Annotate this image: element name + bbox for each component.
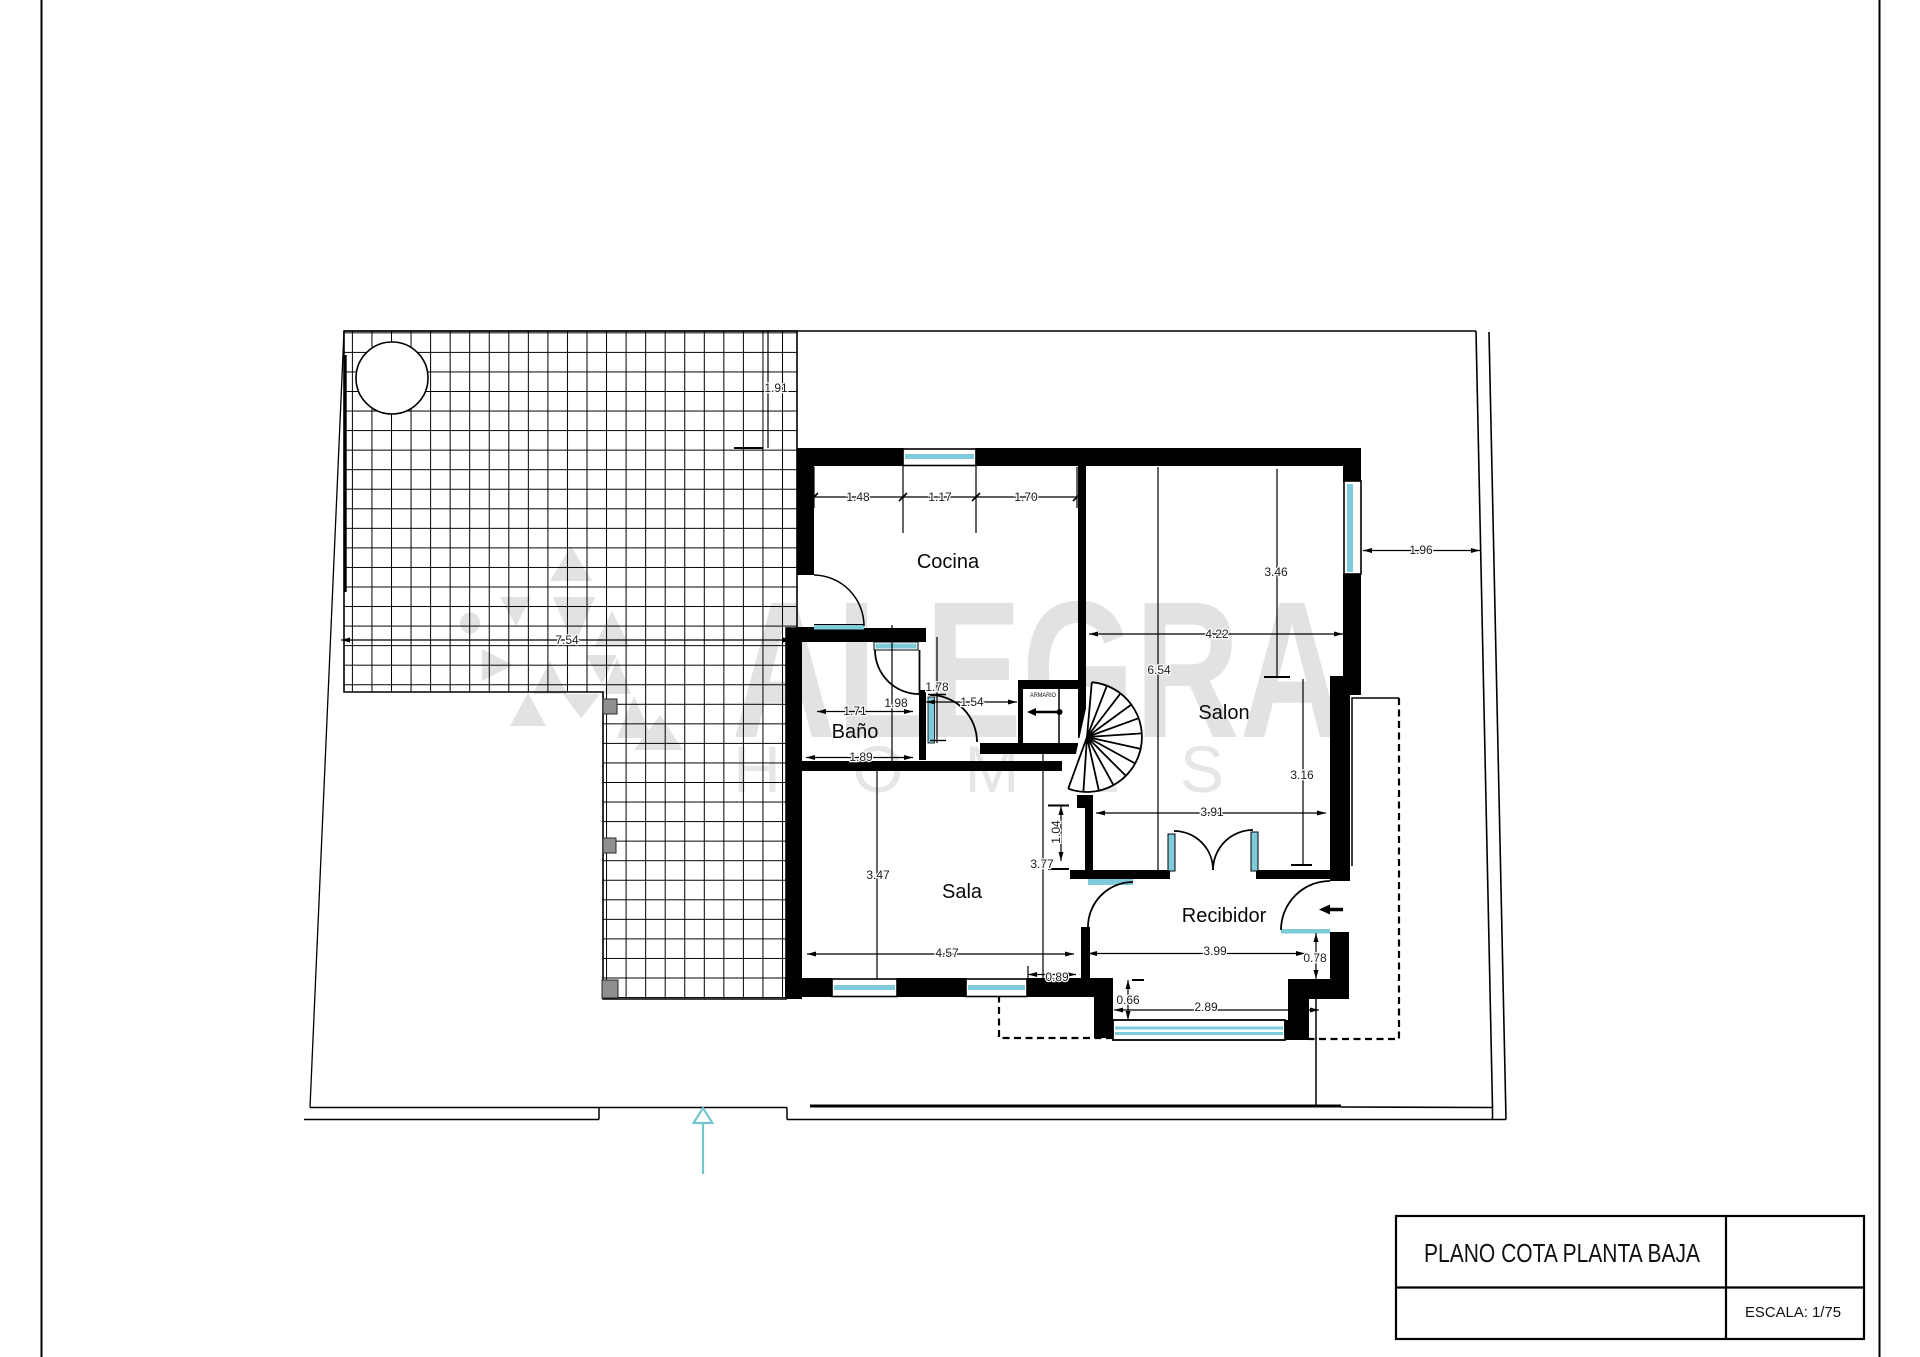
svg-text:6.54: 6.54 <box>1147 663 1171 677</box>
svg-text:ARMARIO: ARMARIO <box>1030 692 1056 699</box>
svg-text:3.46: 3.46 <box>1264 565 1288 579</box>
svg-text:4.57: 4.57 <box>935 946 959 960</box>
svg-text:1.96: 1.96 <box>1409 543 1433 557</box>
svg-text:1.17: 1.17 <box>928 490 952 504</box>
svg-text:1.98: 1.98 <box>884 696 908 710</box>
svg-text:1.04: 1.04 <box>1049 820 1063 844</box>
svg-text:Baño: Baño <box>832 721 879 743</box>
svg-text:4.22: 4.22 <box>1205 627 1229 641</box>
svg-text:Cocina: Cocina <box>917 551 980 573</box>
svg-text:PLANO COTA PLANTA BAJA: PLANO COTA PLANTA BAJA <box>1424 1238 1701 1268</box>
svg-text:1.54: 1.54 <box>960 695 984 709</box>
svg-text:0.89: 0.89 <box>1045 970 1069 984</box>
svg-text:Recibidor: Recibidor <box>1182 905 1267 927</box>
svg-text:1.89: 1.89 <box>849 750 873 764</box>
svg-text:0.66: 0.66 <box>1116 993 1140 1007</box>
svg-text:ESCALA: 1/75: ESCALA: 1/75 <box>1745 1304 1841 1321</box>
svg-text:Sala: Sala <box>942 881 983 903</box>
svg-text:1.91: 1.91 <box>764 381 788 395</box>
svg-text:7.54: 7.54 <box>555 633 579 647</box>
svg-text:1.78: 1.78 <box>925 680 949 694</box>
svg-text:1.71: 1.71 <box>843 704 867 718</box>
svg-text:0.78: 0.78 <box>1303 951 1327 965</box>
svg-text:2.89: 2.89 <box>1194 1000 1218 1014</box>
svg-text:3.99: 3.99 <box>1203 944 1227 958</box>
svg-text:1.70: 1.70 <box>1014 490 1038 504</box>
svg-text:S: S <box>1180 732 1224 806</box>
svg-text:1.48: 1.48 <box>846 490 870 504</box>
svg-text:Salon: Salon <box>1198 702 1249 724</box>
svg-text:3.47: 3.47 <box>866 868 890 882</box>
svg-text:3.77: 3.77 <box>1030 857 1054 871</box>
svg-text:3.91: 3.91 <box>1200 805 1224 819</box>
svg-text:3.16: 3.16 <box>1290 768 1314 782</box>
